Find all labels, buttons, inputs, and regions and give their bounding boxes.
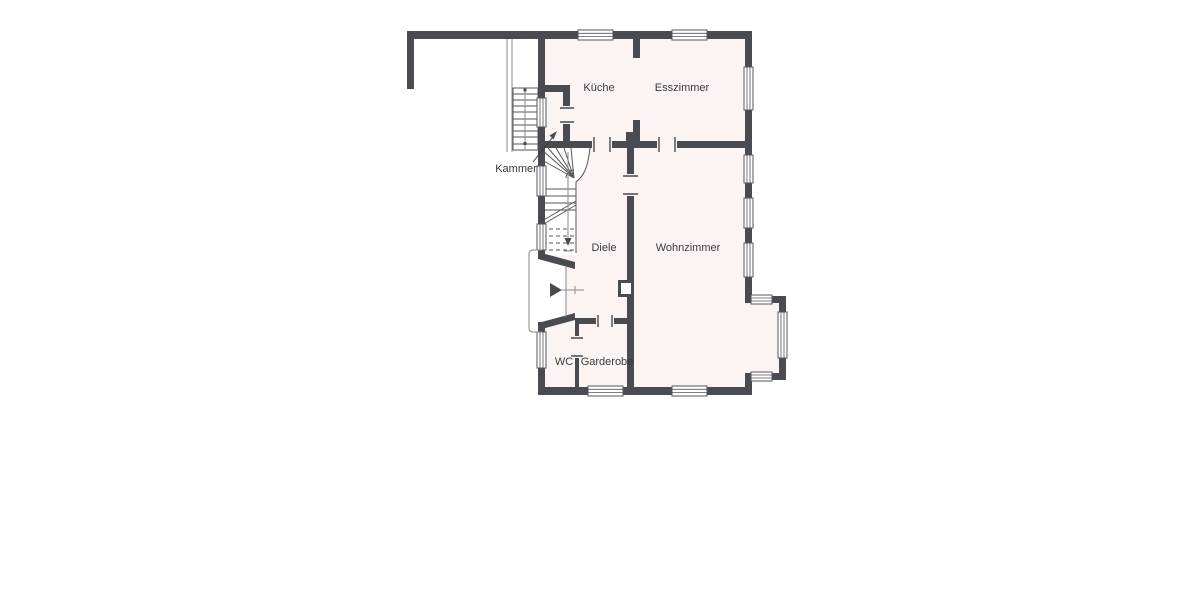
room-label-wc: WC <box>555 356 573 368</box>
window-symbol <box>744 243 753 277</box>
window-symbol <box>751 295 772 304</box>
window-symbol <box>744 67 753 110</box>
hall-living-wall-c <box>627 320 634 387</box>
window-symbol <box>537 98 546 127</box>
dining-living-divider-wall <box>677 141 745 148</box>
kitchen-bottom-wall-b <box>612 141 657 148</box>
hall-living-wall-a <box>627 148 634 174</box>
kitchen-dining-stub-wall <box>633 39 640 58</box>
chimney-stub-foot <box>626 132 633 141</box>
floor-plan-page: Küche Esszimmer Kammer Diele Wohnzimmer … <box>0 0 1200 600</box>
window-symbol <box>751 372 772 381</box>
window-symbol <box>537 166 546 196</box>
chimney-stub-vertical <box>633 120 640 141</box>
garderobe-top-wall-a <box>575 318 596 324</box>
hall-living-wall-b <box>627 196 634 320</box>
floor-plan: Küche Esszimmer Kammer Diele Wohnzimmer … <box>0 0 1200 600</box>
room-label-kammer: Kammer <box>495 163 537 175</box>
stair-railing-lines <box>507 39 512 152</box>
room-label-wohnzimmer: Wohnzimmer <box>656 242 721 254</box>
room-label-garderobe: Garderobe <box>581 356 634 368</box>
wc-divider-wall-a <box>575 324 579 336</box>
window-symbol <box>578 30 613 40</box>
bottom-exterior-wall <box>538 387 752 395</box>
window-symbol <box>537 224 546 250</box>
window-symbol <box>672 30 707 40</box>
garderobe-top-wall-b <box>614 318 627 324</box>
room-label-kueche: Küche <box>583 82 614 94</box>
window-symbol <box>744 198 753 228</box>
window-symbol <box>588 386 623 396</box>
window-symbol <box>672 386 707 396</box>
exterior-staircase <box>507 39 538 152</box>
room-label-diele: Diele <box>591 242 616 254</box>
wall-niche <box>621 283 631 294</box>
window-symbol <box>537 332 546 368</box>
kammer-right-wall-a <box>563 85 570 106</box>
wc-divider-wall-b <box>575 358 579 387</box>
window-symbol <box>744 155 753 183</box>
room-label-esszimmer: Esszimmer <box>655 82 710 94</box>
garden-wall <box>407 31 414 89</box>
kammer-right-wall-b <box>563 124 570 142</box>
kitchen-bottom-wall-a <box>538 141 592 148</box>
window-symbol <box>778 312 787 358</box>
